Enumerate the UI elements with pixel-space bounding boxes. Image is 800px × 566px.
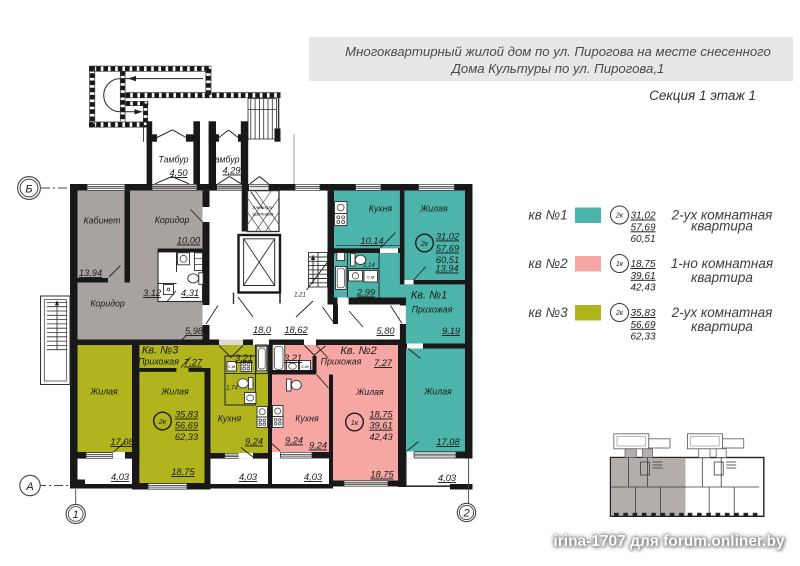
svg-text:Прихожая: Прихожая bbox=[321, 357, 362, 367]
svg-text:9,24: 9,24 bbox=[309, 441, 327, 451]
svg-text:Многоквартирный жилой дом по у: Многоквартирный жилой дом по ул. Пирогов… bbox=[345, 44, 771, 59]
svg-text:Коридор: Коридор bbox=[155, 215, 190, 225]
svg-text:42,43: 42,43 bbox=[630, 283, 655, 294]
svg-text:13,94: 13,94 bbox=[79, 268, 102, 278]
svg-text:60,51: 60,51 bbox=[630, 234, 655, 245]
svg-text:2-ух комнатная: 2-ух комнатная bbox=[671, 305, 773, 320]
svg-text:18,75: 18,75 bbox=[630, 259, 655, 270]
svg-text:35,83: 35,83 bbox=[630, 308, 655, 319]
svg-text:Тамбур: Тамбур bbox=[158, 155, 188, 165]
svg-text:1к: 1к bbox=[616, 261, 624, 268]
svg-text:Прихожая: Прихожая bbox=[412, 305, 453, 315]
svg-text:18,75: 18,75 bbox=[171, 467, 195, 477]
svg-text:Кв. №2: Кв. №2 bbox=[340, 345, 376, 357]
svg-text:5,98: 5,98 bbox=[185, 326, 204, 336]
svg-text:Кухня: Кухня bbox=[218, 414, 242, 424]
svg-text:с.м: с.м bbox=[367, 276, 375, 281]
svg-text:Коридор: Коридор bbox=[90, 299, 125, 309]
svg-text:квартира: квартира bbox=[691, 270, 753, 285]
svg-text:Жилая: Жилая bbox=[89, 387, 118, 397]
svg-text:2к: 2к bbox=[615, 310, 624, 317]
svg-text:9,19: 9,19 bbox=[442, 326, 460, 336]
svg-text:4,03: 4,03 bbox=[438, 473, 457, 483]
svg-text:10,14: 10,14 bbox=[360, 236, 383, 246]
svg-text:62,33: 62,33 bbox=[630, 332, 655, 343]
svg-text:3,21: 3,21 bbox=[235, 353, 253, 363]
svg-text:Кухня: Кухня bbox=[369, 204, 393, 214]
svg-text:31,02: 31,02 bbox=[436, 232, 460, 242]
svg-text:Кабинет: Кабинет bbox=[84, 216, 121, 226]
svg-text:кв №3: кв №3 bbox=[528, 305, 568, 320]
svg-text:1,21: 1,21 bbox=[294, 293, 306, 299]
svg-text:3,21: 3,21 bbox=[284, 353, 302, 363]
svg-text:4,31: 4,31 bbox=[181, 288, 199, 298]
svg-text:9,24: 9,24 bbox=[285, 436, 303, 446]
svg-text:Секция 1 этаж 1: Секция 1 этаж 1 bbox=[649, 88, 756, 103]
svg-text:2к: 2к bbox=[615, 213, 624, 220]
svg-text:35,83: 35,83 bbox=[175, 410, 199, 420]
svg-text:3,12: 3,12 bbox=[143, 288, 162, 298]
svg-text:кв №1: кв №1 bbox=[528, 208, 567, 223]
svg-text:2,99: 2,99 bbox=[356, 288, 375, 298]
svg-text:57,69: 57,69 bbox=[630, 222, 655, 233]
svg-text:18,75: 18,75 bbox=[369, 410, 393, 420]
svg-text:Жилая: Жилая bbox=[419, 204, 448, 214]
svg-text:4,03: 4,03 bbox=[304, 472, 323, 482]
svg-text:5,80: 5,80 bbox=[376, 326, 395, 336]
svg-text:42,43: 42,43 bbox=[369, 432, 393, 442]
svg-text:4,29: 4,29 bbox=[222, 166, 240, 176]
svg-text:Кв. №3: Кв. №3 bbox=[142, 345, 179, 357]
svg-text:щитовая: щитовая bbox=[253, 213, 274, 218]
svg-text:кв №2: кв №2 bbox=[528, 256, 568, 271]
svg-text:18,62: 18,62 bbox=[284, 325, 308, 335]
svg-text:Дома Культуры по ул. Пирогова,: Дома Культуры по ул. Пирогова,1 bbox=[450, 61, 665, 76]
svg-text:Жилая: Жилая bbox=[423, 387, 452, 397]
svg-text:с.м: с.м bbox=[228, 365, 236, 370]
svg-text:Тамбур: Тамбур bbox=[209, 155, 239, 165]
svg-text:с.м: с.м bbox=[301, 365, 309, 370]
svg-text:Жилая: Жилая bbox=[355, 387, 384, 397]
svg-text:31,02: 31,02 bbox=[630, 211, 655, 222]
svg-text:4,03: 4,03 bbox=[111, 472, 130, 482]
svg-text:62,33: 62,33 bbox=[175, 432, 199, 442]
svg-text:1,74: 1,74 bbox=[226, 386, 238, 392]
svg-text:2: 2 bbox=[462, 508, 469, 520]
svg-text:17,08: 17,08 bbox=[110, 437, 134, 447]
svg-text:1: 1 bbox=[73, 509, 79, 521]
svg-text:18,75: 18,75 bbox=[370, 470, 394, 480]
svg-text:9,24: 9,24 bbox=[245, 437, 263, 447]
svg-text:А: А bbox=[25, 481, 33, 493]
svg-text:квартира: квартира bbox=[691, 219, 753, 234]
svg-text:13,94: 13,94 bbox=[435, 264, 458, 274]
svg-text:2к: 2к bbox=[158, 417, 167, 426]
svg-text:Прихожая: Прихожая bbox=[138, 357, 179, 367]
svg-text:Кв. №1: Кв. №1 bbox=[411, 290, 447, 302]
svg-text:4,03: 4,03 bbox=[239, 472, 258, 482]
svg-text:1-но комнатная: 1-но комнатная bbox=[671, 256, 773, 271]
svg-text:Б: Б bbox=[25, 183, 32, 195]
svg-text:квартира: квартира bbox=[691, 319, 753, 334]
svg-text:1к: 1к bbox=[351, 418, 359, 427]
svg-text:7,27: 7,27 bbox=[374, 358, 393, 368]
svg-text:39,61: 39,61 bbox=[369, 421, 392, 431]
svg-text:Электро-: Электро- bbox=[252, 205, 274, 211]
svg-text:39,61: 39,61 bbox=[630, 271, 655, 282]
svg-text:Жилая: Жилая bbox=[160, 387, 189, 397]
svg-text:56,69: 56,69 bbox=[630, 320, 655, 331]
svg-text:7,27: 7,27 bbox=[184, 358, 203, 368]
svg-text:18,0: 18,0 bbox=[253, 325, 272, 335]
svg-text:2к: 2к bbox=[420, 239, 429, 248]
svg-text:56,69: 56,69 bbox=[175, 421, 198, 431]
svg-text:10,00: 10,00 bbox=[177, 236, 201, 246]
svg-text:17,08: 17,08 bbox=[436, 437, 460, 447]
svg-text:57,69: 57,69 bbox=[436, 244, 459, 254]
svg-text:Кухня: Кухня bbox=[295, 414, 319, 424]
svg-text:1,14: 1,14 bbox=[363, 263, 375, 269]
